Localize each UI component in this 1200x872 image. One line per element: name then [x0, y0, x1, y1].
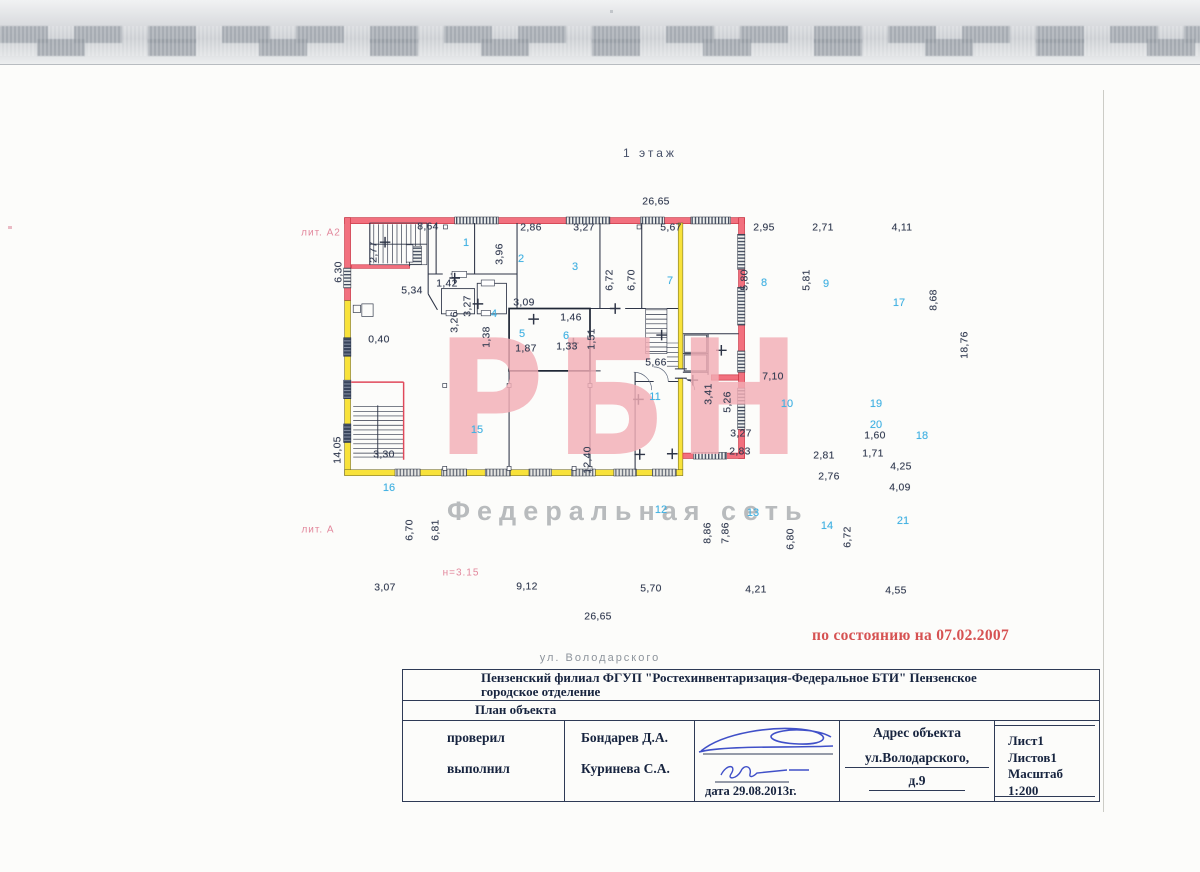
signatures-cell: дата 29.08.2013г. [695, 721, 840, 801]
organization-line1: Пензенский филиал ФГУП "Ростехинвентариз… [481, 671, 1099, 685]
watermark-logo: РБН [436, 306, 811, 492]
role-labels-cell: проверил выполнил [403, 721, 565, 801]
organization-name: Пензенский филиал ФГУП "Ростехинвентариз… [403, 670, 1099, 701]
film-texture [0, 26, 1200, 56]
scanner-strip-artifact [0, 0, 1200, 65]
sheets-total: Листов1 [1008, 750, 1095, 767]
sheet-number: Лист1 [1008, 733, 1095, 750]
watermark-subtitle: Федеральная сеть [447, 496, 809, 527]
address-cell: Адрес объекта ул.Володарского, д.9 [840, 721, 995, 801]
date-label: дата 29.08.2013г. [705, 784, 797, 799]
floor-title: 1 этаж [600, 146, 700, 160]
document-type: План объекта [403, 701, 1099, 721]
title-block: Пензенский филиал ФГУП "Ростехинвентариз… [402, 669, 1100, 802]
scan-speck [8, 226, 12, 229]
address-street: ул.Володарского, [845, 750, 989, 768]
checked-label: проверил [447, 730, 564, 746]
street-label: ул. Володарского [520, 652, 680, 664]
scanned-document: 1 этаж [0, 0, 1200, 872]
address-house: д.9 [869, 773, 966, 791]
address-label: Адрес объекта [873, 725, 961, 741]
performed-label: выполнил [447, 761, 564, 777]
checked-name: Бондарев Д.А. [581, 730, 694, 746]
page-edge-line [1103, 90, 1104, 812]
performed-name: Куринева С.А. [581, 761, 694, 777]
names-cell: Бондарев Д.А. Куринева С.А. [565, 721, 695, 801]
scan-speck [610, 10, 613, 13]
organization-line2: городское отделение [481, 685, 1099, 699]
sheet-info-cell: Лист1 Листов1 Масштаб 1:200 [995, 721, 1095, 801]
scale-label: Масштаб 1:200 [1008, 766, 1095, 799]
signature-strokes [695, 721, 840, 783]
sheet-info-box: Лист1 Листов1 Масштаб 1:200 [995, 725, 1095, 797]
